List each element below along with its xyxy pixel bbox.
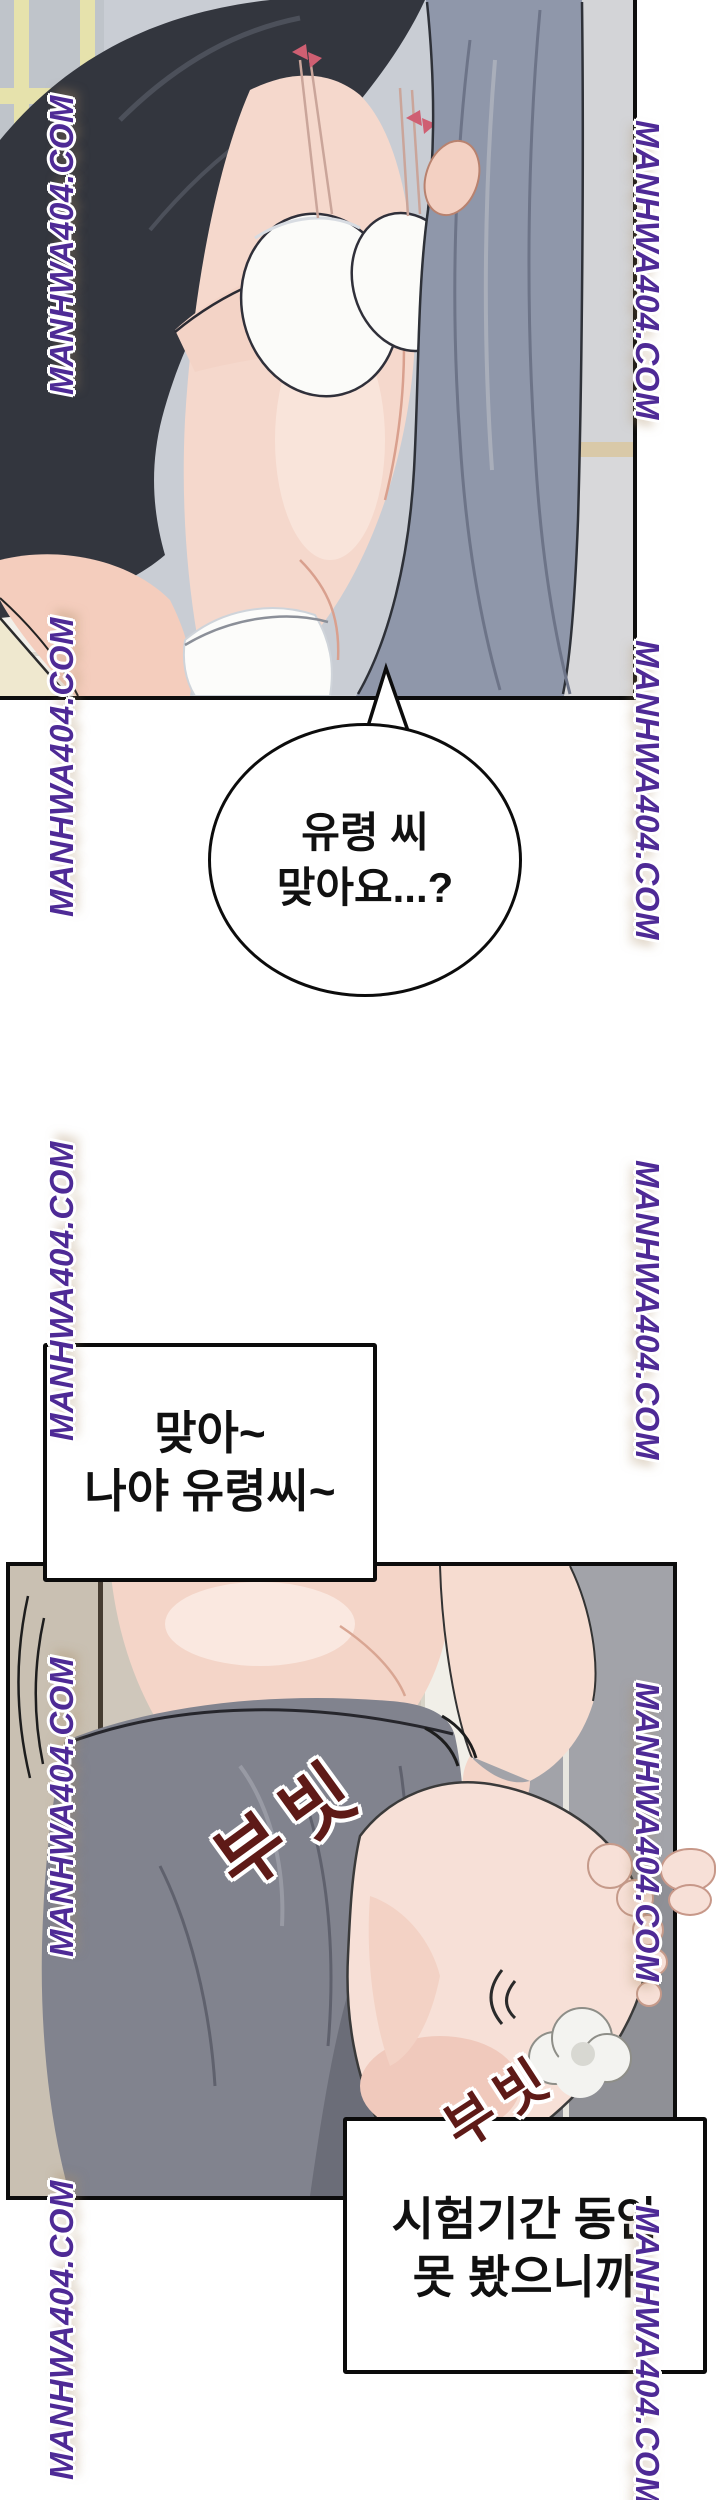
speech-bubble: 유령 씨 맞아요...?: [208, 723, 522, 997]
watermark-right-3: MANHWA404.COM: [625, 1160, 669, 1440]
mid-dialogue-box: 맞아~ 나야 유령씨~: [43, 1343, 377, 1582]
watermark-text: MANHWA404.COM: [628, 1160, 666, 1460]
mid-dialogue-line: 나야 유령씨~: [84, 1463, 335, 1521]
top-comic-panel: [0, 0, 637, 700]
speech-bubble-line: 맞아요...?: [277, 860, 454, 915]
bottom-comic-panel: [6, 1562, 677, 2200]
top-panel-illustration: [0, 0, 633, 696]
speech-bubble-line: 유령 씨: [301, 805, 429, 860]
watermark-text: MANHWA404.COM: [43, 2180, 81, 2480]
bottom-dialogue-line: 시험기간 동안: [392, 2191, 659, 2249]
bottom-dialogue-box: 시험기간 동안 못 봤으니까: [343, 2117, 707, 2374]
manhwa-page: 유령 씨 맞아요...? 맞아~ 나야 유령씨~: [0, 0, 720, 2500]
watermark-left-5: MANHWA404.COM: [40, 2200, 84, 2480]
mid-dialogue-line: 맞아~: [154, 1405, 266, 1463]
bottom-panel-illustration: [10, 1566, 673, 2196]
bottom-dialogue-line: 못 봤으니까: [413, 2249, 637, 2307]
foot-toes-overflow: [668, 1884, 712, 1916]
